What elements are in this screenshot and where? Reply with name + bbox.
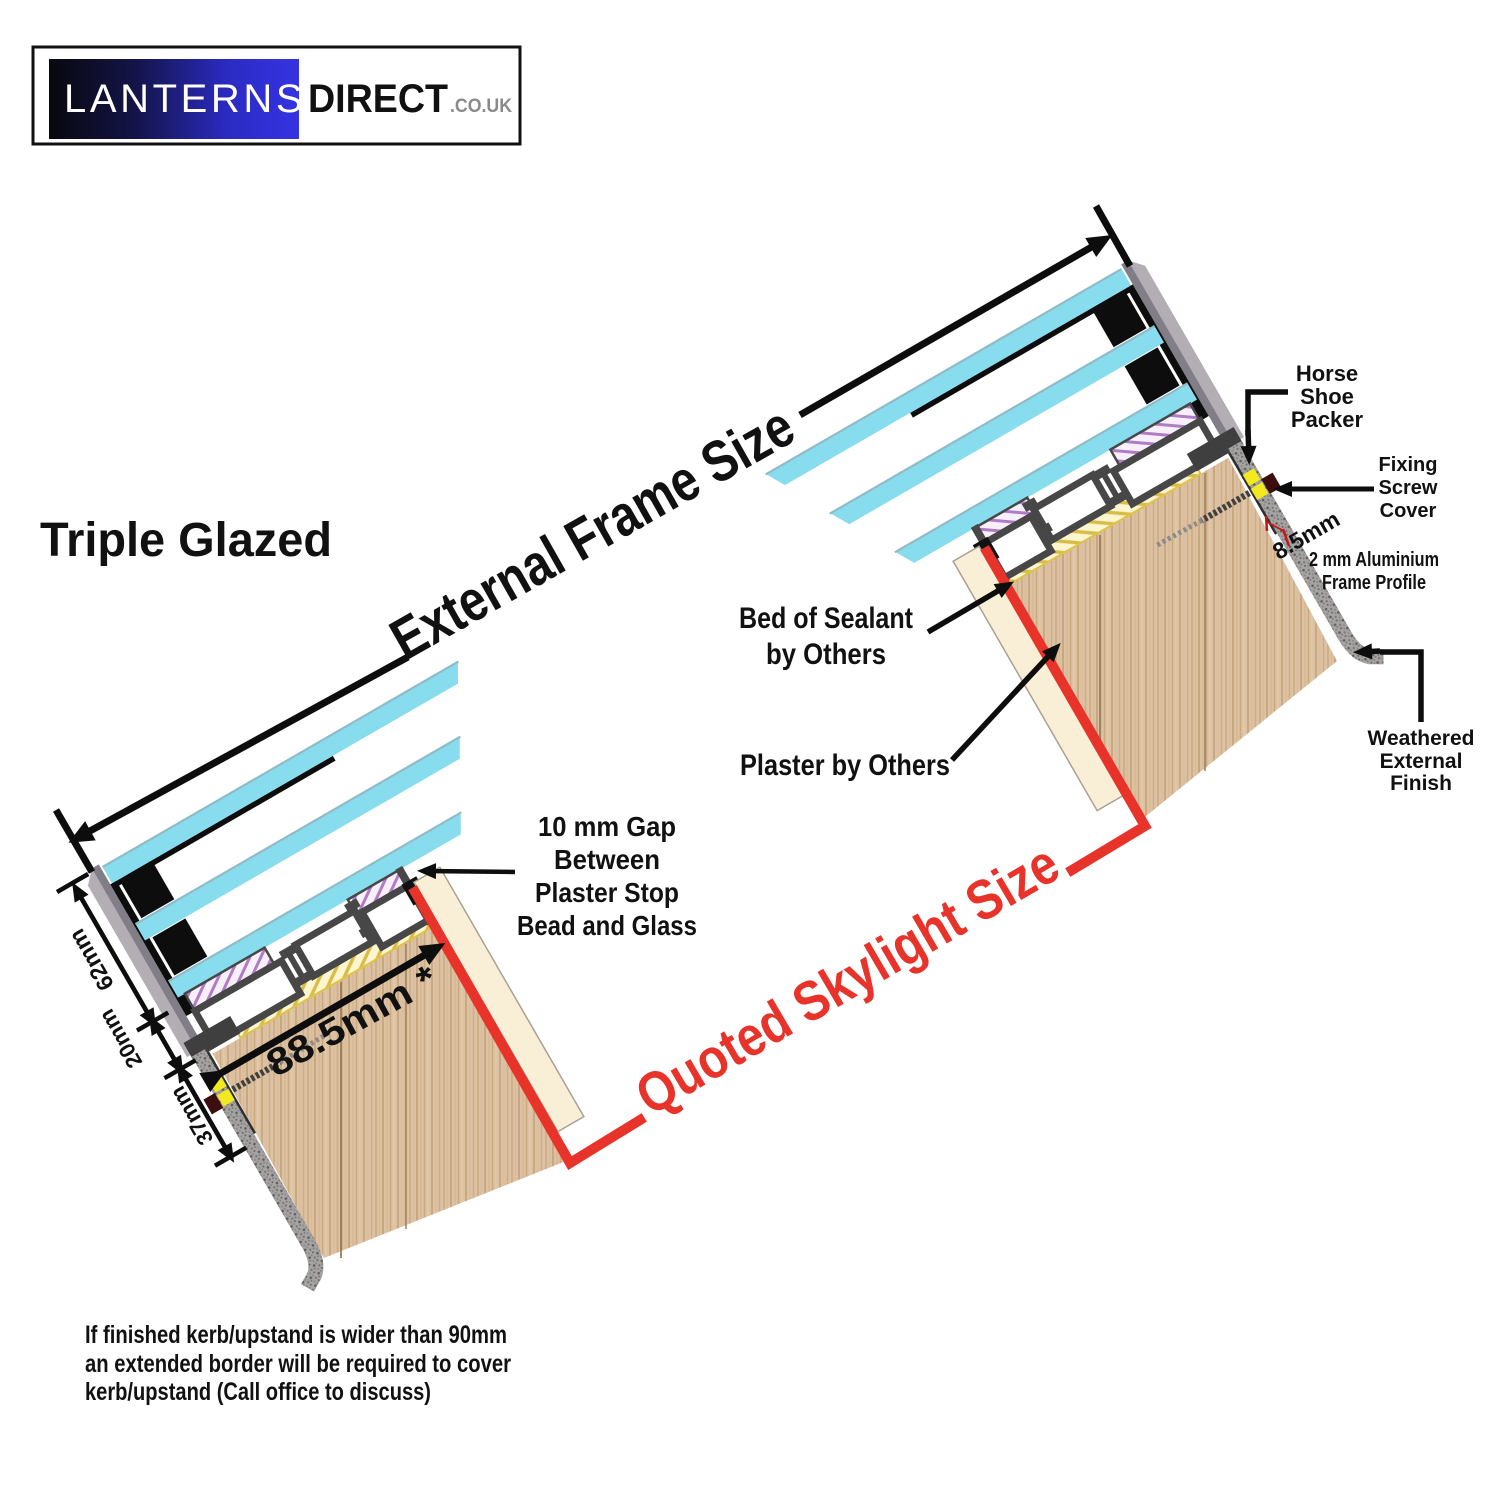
svg-text:Weathered: Weathered — [1368, 727, 1475, 750]
svg-text:Triple Glazed: Triple Glazed — [40, 514, 332, 567]
svg-text:Frame Profile: Frame Profile — [1322, 572, 1426, 594]
svg-text:2 mm Aluminium: 2 mm Aluminium — [1309, 549, 1439, 571]
svg-text:kerb/upstand (Call office to d: kerb/upstand (Call office to discuss) — [85, 1378, 431, 1406]
svg-text:.CO.UK: .CO.UK — [450, 96, 512, 117]
svg-text:Cover: Cover — [1380, 500, 1437, 522]
svg-text:Shoe: Shoe — [1300, 384, 1354, 409]
svg-text:Between: Between — [554, 844, 660, 875]
svg-text:an extended border will be req: an extended border will be required to c… — [85, 1350, 511, 1378]
svg-text:10 mm Gap: 10 mm Gap — [538, 811, 676, 842]
svg-text:Plaster by Others: Plaster by Others — [740, 749, 950, 782]
svg-text:Horse: Horse — [1296, 361, 1358, 386]
svg-text:External: External — [1380, 750, 1463, 773]
svg-text:If finished kerb/upstand is wi: If finished kerb/upstand is wider than 9… — [85, 1321, 507, 1349]
svg-text:Screw: Screw — [1379, 477, 1438, 499]
svg-text:by Others: by Others — [766, 638, 886, 671]
svg-text:DIRECT: DIRECT — [308, 77, 448, 121]
svg-text:Bed of Sealant: Bed of Sealant — [739, 602, 913, 635]
svg-text:Plaster Stop: Plaster Stop — [535, 877, 679, 908]
svg-text:Fixing: Fixing — [1379, 454, 1438, 476]
svg-text:Packer: Packer — [1291, 407, 1364, 432]
svg-text:Finish: Finish — [1390, 772, 1452, 795]
svg-text:Bead and Glass: Bead and Glass — [517, 910, 697, 941]
svg-text:LANTERNS: LANTERNS — [64, 77, 306, 121]
